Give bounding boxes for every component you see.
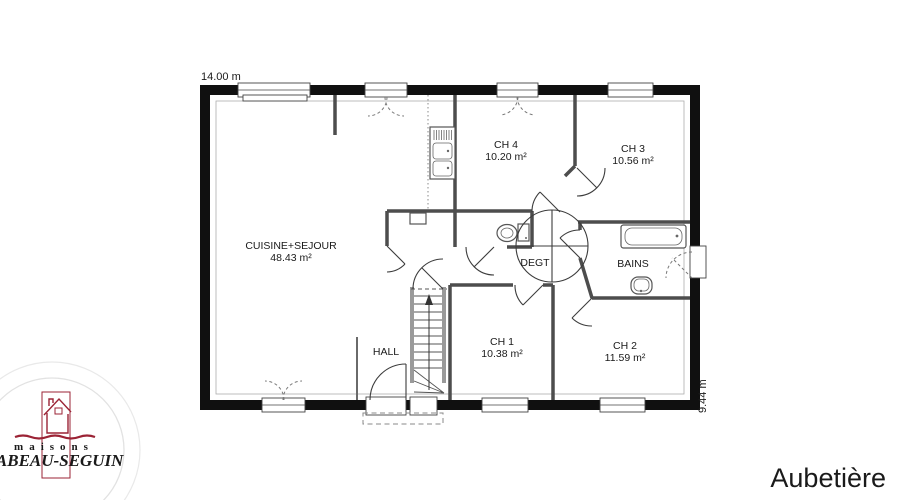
room-area-ch4: 10.20 m²: [485, 151, 527, 163]
room-area-ch3: 10.56 m²: [612, 155, 654, 167]
closet-door: [387, 246, 405, 272]
dimension-height: 9.44 m: [697, 379, 709, 413]
french-window-sejour-top: [365, 83, 407, 116]
house-icon: [44, 399, 71, 433]
ch3-door: [577, 168, 605, 196]
room-label-ch4: CH 4: [494, 139, 518, 151]
stair-rail-left: [410, 287, 414, 383]
entrance-door-swing: [370, 364, 406, 400]
room-area-cuisine: 48.43 m²: [270, 252, 312, 264]
toilet-tank: [518, 224, 529, 241]
bains-door: [560, 230, 580, 258]
floor-plan-canvas: maisons BABEAU-SEGUIN: [0, 0, 900, 500]
model-name: Aubetière: [770, 463, 886, 493]
ch1-door: [515, 285, 543, 305]
entrance-sidelight: [410, 397, 437, 415]
entrance-step: [366, 397, 406, 415]
ch2-door: [572, 298, 592, 326]
window-cuisine-top: [238, 83, 310, 101]
stair-door-leaf: [422, 268, 443, 289]
window-ch3-top: [608, 83, 653, 97]
kitchen-unit: [428, 95, 455, 211]
toilet-bowl: [497, 225, 517, 242]
babeau-seguin-logo: maisons BABEAU-SEGUIN: [0, 362, 140, 500]
degt-door-swings: [516, 210, 588, 282]
room-label-ch2: CH 2: [613, 340, 637, 352]
room-label-cuisine: CUISINE+SEJOUR: [245, 240, 337, 252]
ch4-door: [532, 192, 560, 212]
dimension-width: 14.00 m: [201, 71, 241, 83]
floor-plan-page: maisons BABEAU-SEGUIN: [0, 0, 900, 500]
logo-ground-line: [15, 436, 95, 439]
room-label-ch3: CH 3: [621, 143, 645, 155]
brand-word-babeau-seguin: BABEAU-SEGUIN: [0, 451, 124, 470]
bains-exterior-door: [666, 246, 706, 278]
french-window-cuisine-bottom: [262, 381, 305, 412]
room-label-ch1: CH 1: [490, 336, 514, 348]
room-label-hall: HALL: [373, 346, 399, 358]
stair-treads: [414, 296, 442, 368]
closet-box: [410, 213, 426, 224]
window-ch1-bottom: [482, 398, 528, 412]
staircase: [410, 259, 447, 393]
room-label-bains: BAINS: [617, 258, 649, 270]
french-window-ch4-top: [497, 83, 538, 115]
room-area-ch2: 11.59 m²: [605, 352, 646, 364]
room-area-ch1: 10.38 m²: [481, 348, 523, 360]
window-ch2-bottom: [600, 398, 645, 412]
logo-circle-inner: [0, 378, 124, 500]
room-door-swings: [387, 168, 605, 326]
wc-door-leaf: [474, 247, 494, 267]
room-label-degt: DEGT: [520, 257, 550, 269]
stair-rail-right: [442, 287, 446, 383]
